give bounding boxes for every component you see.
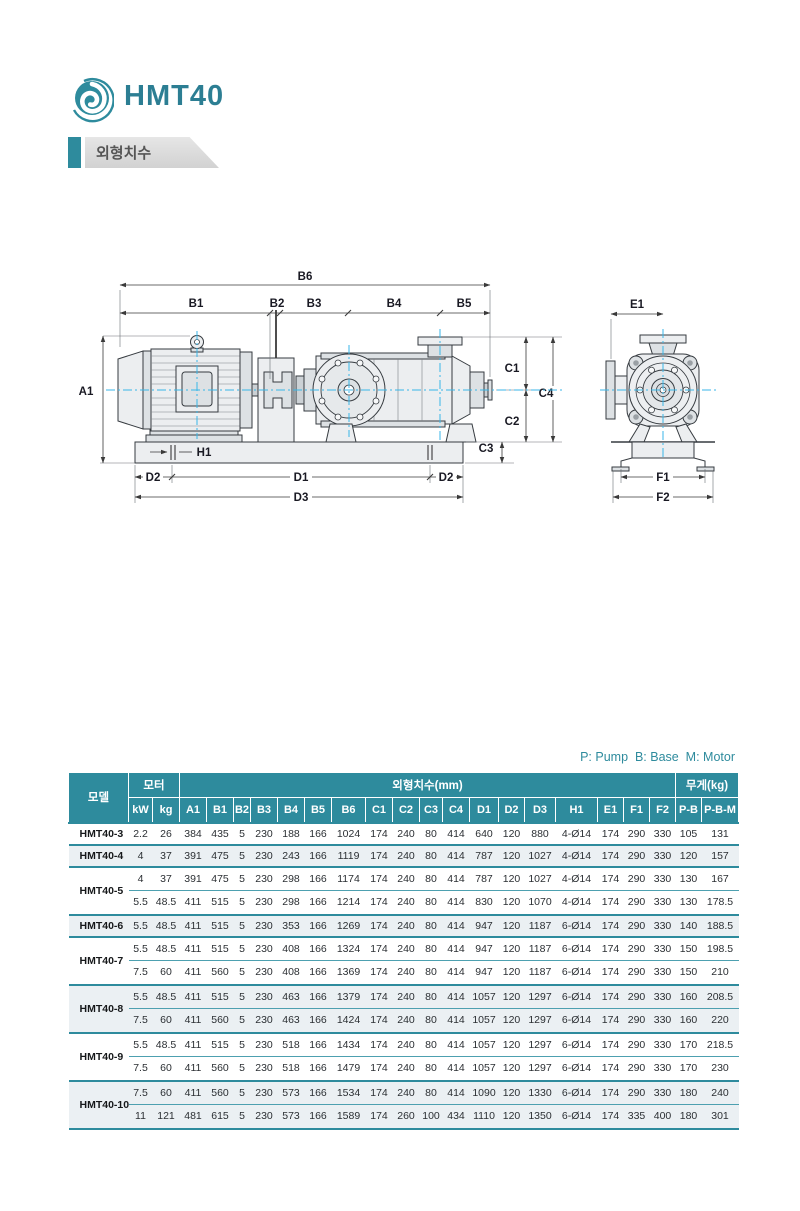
value-cell: 408 [278, 961, 305, 985]
table-row: HMT40-65.548.541151552303531661269174240… [69, 915, 739, 937]
value-cell: 166 [305, 1009, 332, 1033]
value-cell: 353 [278, 915, 305, 937]
value-cell: 174 [366, 1081, 393, 1105]
spec-table-section: 모델모터외형치수(mm)무게(kg)kWkgA1B1B2B3B4B5B6C1C2… [68, 772, 739, 1130]
value-cell: 188 [278, 823, 305, 845]
value-cell: 37 [153, 867, 180, 891]
value-cell: 411 [180, 961, 207, 985]
value-cell: 243 [278, 845, 305, 867]
value-cell: 5 [234, 937, 251, 961]
value-cell: 174 [598, 985, 624, 1009]
value-cell: 80 [420, 961, 443, 985]
value-cell: 166 [305, 1081, 332, 1105]
model-cell: HMT40-5 [69, 867, 129, 915]
value-cell: 1070 [525, 891, 556, 915]
model-cell: HMT40-7 [69, 937, 129, 985]
value-cell: 174 [366, 867, 393, 891]
header-cell: A1 [180, 798, 207, 823]
value-cell: 414 [443, 915, 470, 937]
value-cell: 6-Ø14 [556, 1057, 598, 1081]
value-cell: 140 [676, 915, 702, 937]
model-cell: HMT40-4 [69, 845, 129, 867]
dim-label-c3: C3 [479, 443, 494, 455]
value-cell: 188.5 [702, 915, 739, 937]
value-cell: 230 [251, 985, 278, 1009]
value-cell: 411 [180, 891, 207, 915]
header-cell: F2 [650, 798, 676, 823]
value-cell: 330 [650, 961, 676, 985]
value-cell: 1379 [332, 985, 366, 1009]
value-cell: 4-Ø14 [556, 867, 598, 891]
value-cell: 80 [420, 1009, 443, 1033]
value-cell: 174 [366, 1105, 393, 1129]
value-cell: 411 [180, 1033, 207, 1057]
value-cell: 240 [393, 937, 420, 961]
value-cell: 560 [207, 961, 234, 985]
value-cell: 48.5 [153, 937, 180, 961]
section-label: 외형치수 [85, 137, 219, 168]
motor [118, 336, 262, 443]
value-cell: 1110 [470, 1105, 499, 1129]
value-cell: 174 [598, 891, 624, 915]
header-cell: B3 [251, 798, 278, 823]
value-cell: 120 [499, 985, 525, 1009]
value-cell: 391 [180, 867, 207, 891]
value-cell: 5 [234, 1033, 251, 1057]
value-cell: 11 [129, 1105, 153, 1129]
value-cell: 105 [676, 823, 702, 845]
value-cell: 290 [624, 1009, 650, 1033]
value-cell: 4-Ø14 [556, 823, 598, 845]
value-cell: 414 [443, 1033, 470, 1057]
value-cell: 560 [207, 1081, 234, 1105]
header-cell: kg [153, 798, 180, 823]
value-cell: 174 [598, 1009, 624, 1033]
dim-label-d2-left: D2 [146, 472, 161, 484]
value-cell: 830 [470, 891, 499, 915]
value-cell: 80 [420, 867, 443, 891]
table-row: 7.56041156052305181661479174240804141057… [69, 1057, 739, 1081]
value-cell: 515 [207, 915, 234, 937]
value-cell: 240 [393, 1081, 420, 1105]
value-cell: 1324 [332, 937, 366, 961]
value-cell: 1090 [470, 1081, 499, 1105]
section-accent-bar [68, 137, 81, 168]
value-cell: 475 [207, 867, 234, 891]
value-cell: 166 [305, 823, 332, 845]
value-cell: 170 [676, 1057, 702, 1081]
dim-label-b5: B5 [457, 298, 472, 310]
table-row: 1112148161552305731661589174260100434111… [69, 1105, 739, 1129]
value-cell: 518 [278, 1033, 305, 1057]
value-cell: 515 [207, 985, 234, 1009]
value-cell: 166 [305, 1033, 332, 1057]
value-cell: 166 [305, 985, 332, 1009]
value-cell: 1187 [525, 961, 556, 985]
value-cell: 330 [650, 937, 676, 961]
value-cell: 166 [305, 891, 332, 915]
header-cell: kW [129, 798, 153, 823]
value-cell: 174 [366, 915, 393, 937]
dim-label-f2: F2 [656, 492, 669, 504]
value-cell: 80 [420, 1081, 443, 1105]
value-cell: 560 [207, 1009, 234, 1033]
brand-logo [66, 76, 114, 124]
value-cell: 640 [470, 823, 499, 845]
value-cell: 230 [251, 1009, 278, 1033]
value-cell: 6-Ø14 [556, 985, 598, 1009]
value-cell: 5 [234, 867, 251, 891]
value-cell: 240 [393, 867, 420, 891]
spec-table-body: HMT40-32.2263844355230188166102417424080… [69, 823, 739, 1129]
value-cell: 5 [234, 985, 251, 1009]
value-cell: 6-Ø14 [556, 1081, 598, 1105]
header-cell: C3 [420, 798, 443, 823]
value-cell: 1297 [525, 1057, 556, 1081]
value-cell: 515 [207, 1033, 234, 1057]
value-cell: 330 [650, 867, 676, 891]
value-cell: 37 [153, 845, 180, 867]
value-cell: 391 [180, 845, 207, 867]
value-cell: 240 [393, 891, 420, 915]
value-cell: 131 [702, 823, 739, 845]
value-cell: 240 [393, 1057, 420, 1081]
value-cell: 230 [251, 937, 278, 961]
value-cell: 1214 [332, 891, 366, 915]
table-row: HMT40-5437391475523029816611741742408041… [69, 867, 739, 891]
value-cell: 1479 [332, 1057, 366, 1081]
value-cell: 174 [366, 985, 393, 1009]
value-cell: 463 [278, 985, 305, 1009]
value-cell: 330 [650, 1009, 676, 1033]
value-cell: 4-Ø14 [556, 891, 598, 915]
value-cell: 174 [598, 1057, 624, 1081]
value-cell: 435 [207, 823, 234, 845]
model-cell: HMT40-8 [69, 985, 129, 1033]
value-cell: 414 [443, 823, 470, 845]
value-cell: 290 [624, 891, 650, 915]
value-cell: 1424 [332, 1009, 366, 1033]
end-view: E1 F1 F2 [606, 299, 715, 504]
value-cell: 150 [676, 961, 702, 985]
value-cell: 1350 [525, 1105, 556, 1129]
value-cell: 167 [702, 867, 739, 891]
value-cell: 5.5 [129, 915, 153, 937]
value-cell: 1057 [470, 1033, 499, 1057]
value-cell: 100 [420, 1105, 443, 1129]
value-cell: 1589 [332, 1105, 366, 1129]
value-cell: 180 [676, 1105, 702, 1129]
value-cell: 174 [598, 823, 624, 845]
value-cell: 60 [153, 1081, 180, 1105]
value-cell: 298 [278, 891, 305, 915]
value-cell: 330 [650, 915, 676, 937]
value-cell: 230 [251, 1057, 278, 1081]
header-cell: B1 [207, 798, 234, 823]
model-cell: HMT40-6 [69, 915, 129, 937]
table-row: HMT40-4437391475523024316611191742408041… [69, 845, 739, 867]
value-cell: 80 [420, 985, 443, 1009]
value-cell: 5 [234, 961, 251, 985]
dim-label-b6: B6 [298, 271, 313, 283]
value-cell: 411 [180, 915, 207, 937]
value-cell: 174 [598, 1081, 624, 1105]
header-cell: C2 [393, 798, 420, 823]
value-cell: 220 [702, 1009, 739, 1033]
value-cell: 947 [470, 961, 499, 985]
value-cell: 174 [366, 891, 393, 915]
value-cell: 160 [676, 1009, 702, 1033]
value-cell: 198.5 [702, 937, 739, 961]
value-cell: 463 [278, 1009, 305, 1033]
value-cell: 166 [305, 961, 332, 985]
value-cell: 615 [207, 1105, 234, 1129]
value-cell: 414 [443, 1057, 470, 1081]
value-cell: 174 [598, 845, 624, 867]
value-cell: 60 [153, 1009, 180, 1033]
table-row: HMT40-107.560411560523057316615341742408… [69, 1081, 739, 1105]
value-cell: 1297 [525, 985, 556, 1009]
value-cell: 6-Ø14 [556, 961, 598, 985]
value-cell: 414 [443, 867, 470, 891]
value-cell: 290 [624, 937, 650, 961]
dim-label-h1: H1 [197, 447, 212, 459]
value-cell: 330 [650, 823, 676, 845]
header-cell: H1 [556, 798, 598, 823]
value-cell: 414 [443, 985, 470, 1009]
value-cell: 150 [676, 937, 702, 961]
value-cell: 2.2 [129, 823, 153, 845]
value-cell: 210 [702, 961, 739, 985]
model-cell: HMT40-10 [69, 1081, 129, 1129]
value-cell: 1119 [332, 845, 366, 867]
value-cell: 1024 [332, 823, 366, 845]
value-cell: 414 [443, 1081, 470, 1105]
value-cell: 240 [393, 1033, 420, 1057]
header-cell: F1 [624, 798, 650, 823]
dim-label-b1: B1 [189, 298, 204, 310]
value-cell: 1057 [470, 1009, 499, 1033]
value-cell: 573 [278, 1105, 305, 1129]
value-cell: 218.5 [702, 1033, 739, 1057]
pump-foot [446, 424, 476, 442]
table-row: 5.548.5411515523029816612141742408041483… [69, 891, 739, 915]
value-cell: 414 [443, 891, 470, 915]
value-cell: 1174 [332, 867, 366, 891]
value-cell: 4 [129, 845, 153, 867]
value-cell: 48.5 [153, 915, 180, 937]
value-cell: 120 [499, 1033, 525, 1057]
header-cell: D2 [499, 798, 525, 823]
dim-label-f1: F1 [656, 472, 670, 484]
value-cell: 230 [702, 1057, 739, 1081]
table-row: 7.56041156052304081661369174240804149471… [69, 961, 739, 985]
value-cell: 5 [234, 1105, 251, 1129]
value-cell: 6-Ø14 [556, 1033, 598, 1057]
value-cell: 130 [676, 891, 702, 915]
value-cell: 6-Ø14 [556, 1009, 598, 1033]
value-cell: 166 [305, 867, 332, 891]
value-cell: 1057 [470, 985, 499, 1009]
value-cell: 174 [598, 915, 624, 937]
value-cell: 166 [305, 915, 332, 937]
value-cell: 1057 [470, 1057, 499, 1081]
value-cell: 947 [470, 937, 499, 961]
value-cell: 947 [470, 915, 499, 937]
value-cell: 290 [624, 845, 650, 867]
value-cell: 411 [180, 1009, 207, 1033]
value-cell: 414 [443, 1009, 470, 1033]
value-cell: 166 [305, 1057, 332, 1081]
value-cell: 120 [499, 1009, 525, 1033]
value-cell: 335 [624, 1105, 650, 1129]
value-cell: 5.5 [129, 891, 153, 915]
value-cell: 208.5 [702, 985, 739, 1009]
value-cell: 330 [650, 891, 676, 915]
value-cell: 330 [650, 1057, 676, 1081]
value-cell: 230 [251, 1033, 278, 1057]
value-cell: 290 [624, 867, 650, 891]
value-cell: 230 [251, 891, 278, 915]
value-cell: 5 [234, 891, 251, 915]
value-cell: 230 [251, 1105, 278, 1129]
value-cell: 120 [499, 845, 525, 867]
value-cell: 290 [624, 1033, 650, 1057]
header-cell: B5 [305, 798, 332, 823]
value-cell: 290 [624, 961, 650, 985]
value-cell: 170 [676, 1033, 702, 1057]
value-cell: 120 [676, 845, 702, 867]
value-cell: 411 [180, 937, 207, 961]
value-cell: 7.5 [129, 961, 153, 985]
dim-label-a1: A1 [79, 386, 94, 398]
value-cell: 121 [153, 1105, 180, 1129]
value-cell: 6-Ø14 [556, 937, 598, 961]
value-cell: 5.5 [129, 937, 153, 961]
value-cell: 1187 [525, 937, 556, 961]
page-title: HMT40 [124, 80, 224, 113]
value-cell: 5 [234, 915, 251, 937]
value-cell: 120 [499, 823, 525, 845]
value-cell: 240 [393, 845, 420, 867]
value-cell: 787 [470, 867, 499, 891]
value-cell: 166 [305, 845, 332, 867]
value-cell: 240 [702, 1081, 739, 1105]
value-cell: 5 [234, 1081, 251, 1105]
value-cell: 230 [251, 845, 278, 867]
value-cell: 48.5 [153, 985, 180, 1009]
value-cell: 4 [129, 867, 153, 891]
value-cell: 434 [443, 1105, 470, 1129]
dim-label-c2: C2 [505, 416, 520, 428]
value-cell: 120 [499, 1105, 525, 1129]
table-row: 7.56041156052304631661424174240804141057… [69, 1009, 739, 1033]
value-cell: 1434 [332, 1033, 366, 1057]
value-cell: 400 [650, 1105, 676, 1129]
value-cell: 174 [366, 1033, 393, 1057]
value-cell: 290 [624, 915, 650, 937]
value-cell: 174 [366, 961, 393, 985]
value-cell: 174 [366, 823, 393, 845]
value-cell: 174 [598, 961, 624, 985]
value-cell: 174 [598, 1033, 624, 1057]
value-cell: 260 [393, 1105, 420, 1129]
header-cell: D1 [470, 798, 499, 823]
value-cell: 560 [207, 1057, 234, 1081]
value-cell: 414 [443, 961, 470, 985]
value-cell: 230 [251, 867, 278, 891]
value-cell: 414 [443, 845, 470, 867]
value-cell: 1297 [525, 1033, 556, 1057]
spec-table: 모델모터외형치수(mm)무게(kg)kWkgA1B1B2B3B4B5B6C1C2… [68, 772, 739, 1130]
dim-label-b3: B3 [307, 298, 322, 310]
dim-label-d1: D1 [294, 472, 309, 484]
header-cell: B2 [234, 798, 251, 823]
value-cell: 230 [251, 823, 278, 845]
value-cell: 384 [180, 823, 207, 845]
model-cell: HMT40-9 [69, 1033, 129, 1081]
value-cell: 174 [366, 1009, 393, 1033]
value-cell: 5 [234, 1057, 251, 1081]
value-cell: 330 [650, 1033, 676, 1057]
value-cell: 330 [650, 1081, 676, 1105]
value-cell: 411 [180, 1057, 207, 1081]
value-cell: 174 [598, 867, 624, 891]
value-cell: 48.5 [153, 1033, 180, 1057]
header-group-cell: 모터 [129, 773, 180, 798]
value-cell: 408 [278, 937, 305, 961]
value-cell: 240 [393, 961, 420, 985]
value-cell: 1330 [525, 1081, 556, 1105]
value-cell: 240 [393, 985, 420, 1009]
value-cell: 48.5 [153, 891, 180, 915]
value-cell: 5.5 [129, 1033, 153, 1057]
coupling [258, 358, 294, 442]
value-cell: 166 [305, 1105, 332, 1129]
value-cell: 1297 [525, 1009, 556, 1033]
value-cell: 330 [650, 985, 676, 1009]
value-cell: 80 [420, 915, 443, 937]
value-cell: 7.5 [129, 1009, 153, 1033]
value-cell: 1027 [525, 867, 556, 891]
value-cell: 5 [234, 1009, 251, 1033]
value-cell: 174 [598, 1105, 624, 1129]
value-cell: 298 [278, 867, 305, 891]
value-cell: 515 [207, 937, 234, 961]
base-plate [135, 442, 463, 463]
value-cell: 157 [702, 845, 739, 867]
value-cell: 160 [676, 985, 702, 1009]
value-cell: 120 [499, 891, 525, 915]
value-cell: 174 [598, 937, 624, 961]
value-cell: 1534 [332, 1081, 366, 1105]
value-cell: 120 [499, 937, 525, 961]
dim-label-d3: D3 [294, 492, 309, 504]
value-cell: 1027 [525, 845, 556, 867]
value-cell: 80 [420, 845, 443, 867]
value-cell: 60 [153, 1057, 180, 1081]
value-cell: 5.5 [129, 985, 153, 1009]
spec-table-head: 모델모터외형치수(mm)무게(kg)kWkgA1B1B2B3B4B5B6C1C2… [69, 773, 739, 823]
value-cell: 180 [676, 1081, 702, 1105]
value-cell: 411 [180, 985, 207, 1009]
dim-label-e1: E1 [630, 299, 645, 311]
value-cell: 414 [443, 937, 470, 961]
value-cell: 787 [470, 845, 499, 867]
value-cell: 130 [676, 867, 702, 891]
value-cell: 80 [420, 1057, 443, 1081]
value-cell: 174 [366, 937, 393, 961]
